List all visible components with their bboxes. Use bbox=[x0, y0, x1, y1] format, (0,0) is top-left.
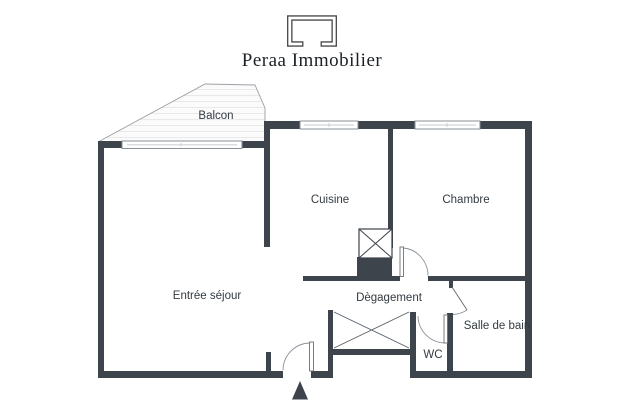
room-label-balcon: Balcon bbox=[198, 110, 233, 122]
chambre-door bbox=[400, 247, 428, 277]
floor-plan-page: Peraa Immobilier bbox=[0, 0, 624, 416]
window-cuisine bbox=[300, 121, 358, 129]
entrance-door bbox=[283, 342, 314, 371]
brand-name: Peraa Immobilier bbox=[0, 50, 624, 72]
wall-closet-bottom bbox=[333, 349, 410, 355]
duct-base bbox=[357, 257, 392, 277]
balcony-area bbox=[98, 84, 265, 142]
room-label-cuisine: Cuisine bbox=[311, 194, 349, 206]
entrance-opening bbox=[283, 370, 311, 379]
entrance-arrow-icon bbox=[292, 381, 308, 400]
wall-sejour-cuisine-divider bbox=[264, 121, 270, 247]
walls bbox=[98, 121, 532, 378]
room-label-chambre: Chambre bbox=[442, 194, 489, 206]
wall-corridor-north-b bbox=[428, 276, 532, 281]
brand-bracket-logo-icon bbox=[286, 12, 338, 50]
closet-cross-icon bbox=[334, 312, 409, 348]
wall-bottom-right bbox=[410, 371, 532, 378]
room-label-salle-de-bain: Salle de bain bbox=[464, 320, 531, 332]
wall-entrance-stub bbox=[266, 352, 271, 371]
room-label-degagement: Dègagement bbox=[356, 292, 423, 304]
room-label-entree-sejour: Entrée séjour bbox=[173, 290, 242, 302]
wc-door bbox=[418, 315, 448, 343]
window-sejour bbox=[122, 141, 242, 149]
window-chambre bbox=[415, 121, 480, 129]
wall-right bbox=[525, 121, 532, 378]
bathroom-door bbox=[452, 287, 467, 315]
duct-cross-icon bbox=[359, 229, 392, 258]
wall-left bbox=[98, 141, 104, 378]
wall-closet-left bbox=[328, 310, 333, 378]
wall-wc-left bbox=[410, 312, 416, 378]
room-label-wc: WC bbox=[423, 349, 442, 361]
